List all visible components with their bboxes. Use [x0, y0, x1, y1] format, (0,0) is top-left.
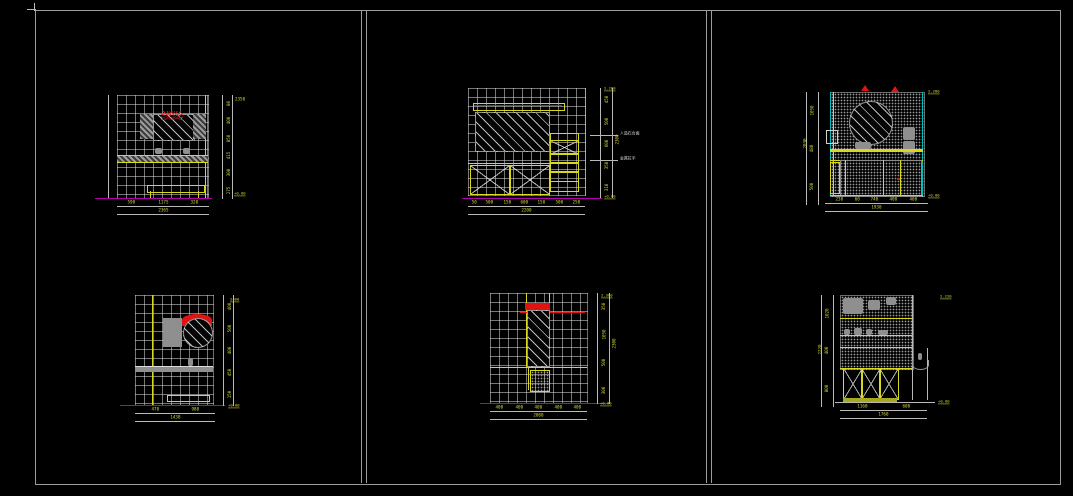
dim-line	[825, 211, 928, 212]
dim-total-row: 1930	[830, 204, 923, 211]
dim-row: 470980	[135, 406, 215, 413]
dim-total-row: 2365	[117, 207, 209, 214]
counter-line	[117, 162, 208, 163]
dim-column: 80400850415300275	[223, 95, 235, 199]
dim-total: 2030	[803, 138, 807, 148]
dim-label: 450	[605, 95, 609, 103]
dim-total: 2365	[158, 209, 168, 213]
base-cabinet-door	[879, 368, 899, 400]
towel	[886, 297, 896, 305]
base-cabinet-door	[861, 368, 881, 400]
dim-line	[468, 214, 585, 215]
round-mirror	[849, 101, 893, 145]
toiletry-item	[866, 329, 872, 335]
elevation-marker: 2400	[230, 298, 239, 302]
dim-label: 500	[486, 201, 494, 205]
dim-line	[609, 293, 610, 404]
light-strip	[474, 105, 562, 106]
dim-label: 480	[810, 145, 814, 153]
shelf-line	[840, 335, 912, 336]
wall-edge-line	[205, 95, 206, 198]
bench-leg	[198, 191, 199, 198]
dim-label: 230	[836, 198, 844, 202]
panel-divider	[706, 10, 712, 483]
spotlight-symbol	[861, 85, 869, 91]
bench-leg	[150, 191, 151, 198]
dim-total-row: 1438	[135, 414, 215, 421]
tile-wall	[135, 295, 214, 406]
round-mirror	[183, 318, 213, 348]
elevation-marker: +0.00	[604, 195, 616, 199]
base-cabinet-door	[470, 165, 510, 195]
dim-label: 320	[191, 201, 199, 205]
elevation-marker: +0.00	[228, 404, 240, 408]
trim-line	[152, 295, 153, 405]
dim-line	[117, 214, 209, 215]
dim-total: 1438	[170, 416, 180, 420]
dim-label: 1160	[858, 405, 868, 409]
dim-row: 400400400400400	[490, 404, 587, 411]
dim-label: 500	[810, 182, 814, 190]
dim-label: 50	[472, 201, 477, 205]
dim-label: 350	[602, 303, 606, 311]
dim-label: 1050	[602, 330, 606, 340]
dim-label: 400	[228, 347, 232, 355]
dim-label: 415	[227, 152, 231, 160]
side-panel	[830, 162, 840, 194]
toiletry-item	[854, 328, 862, 335]
towel	[903, 127, 915, 140]
dim-label: 600	[521, 201, 529, 205]
tall-mirror	[527, 310, 550, 367]
dim-line	[233, 295, 234, 406]
dim-label: 400	[227, 117, 231, 125]
basin-leg-line	[927, 348, 928, 400]
dim-label: 450	[228, 369, 232, 377]
dim-label: 150	[503, 201, 511, 205]
faucet-symbol	[183, 148, 190, 154]
dim-label: 400	[825, 347, 829, 355]
dim-line	[135, 421, 215, 422]
counter-line	[490, 367, 587, 368]
dim-label: 400	[228, 302, 232, 310]
dim-line	[840, 418, 927, 419]
dim-column: 1020400800	[821, 295, 833, 407]
dim-row: 50500150600150500250	[468, 199, 585, 206]
dim-label: 400	[535, 406, 543, 410]
elevation-marker: +0.00	[234, 192, 246, 196]
dim-label: 60	[855, 198, 860, 202]
dim-row: 23060740400400	[830, 196, 923, 203]
elevation-drawing-6: 1020400800 2220 1160600 1760 2.220 +0.00	[810, 288, 965, 428]
plant-symbol	[161, 111, 183, 120]
mirror-side-panel	[193, 114, 206, 139]
mirror	[475, 112, 550, 152]
towel	[843, 298, 863, 314]
dim-total-row: 2200	[468, 207, 585, 214]
dim-line	[833, 295, 834, 407]
dim-label: 310	[605, 183, 609, 191]
corner-mark	[34, 3, 35, 11]
dim-label: 1175	[158, 201, 168, 205]
bench	[147, 185, 205, 193]
elevation-drawing-3: 1050480500 2030 23060740400400 1930 2.28…	[795, 82, 970, 217]
dim-label: 800	[825, 385, 829, 393]
dim-total: 1760	[878, 413, 888, 417]
handle-mark	[897, 178, 900, 180]
elevation-marker: 2.280	[928, 90, 940, 94]
shelf-line	[840, 347, 912, 348]
dim-label: 1020	[825, 309, 829, 319]
cabinet-divider	[900, 160, 901, 195]
dim-total: 2300	[612, 338, 616, 348]
dim-line	[612, 88, 613, 198]
dim-column: 400500400450150	[224, 295, 236, 406]
dim-label: 850	[227, 135, 231, 143]
cabinet-divider	[883, 160, 884, 195]
basin-pedestal	[530, 370, 550, 392]
dim-label: 740	[871, 198, 879, 202]
wall-edge-line	[912, 295, 913, 400]
base-cabinet-door	[510, 165, 550, 195]
dim-line	[818, 92, 819, 205]
dim-label: 275	[227, 187, 231, 195]
leader-line	[590, 160, 618, 161]
faucet-symbol	[878, 330, 888, 335]
material-annotation: 人造石台面	[620, 132, 640, 136]
extension-line	[108, 95, 109, 199]
elevation-drawing-4: 400500400450150 2400 +0.00 470980 1438	[120, 290, 265, 430]
towel	[868, 300, 880, 310]
wall-panel	[163, 318, 182, 347]
switch-panel	[826, 130, 838, 144]
dim-label: 300	[227, 169, 231, 177]
dim-label: 250	[573, 201, 581, 205]
basin-faucet	[855, 142, 871, 149]
dim-label: 400	[890, 198, 898, 202]
shelf-line	[840, 318, 912, 319]
dim-label: 80	[227, 101, 231, 106]
mirror-lamp	[525, 303, 550, 310]
dim-label: 150	[538, 201, 546, 205]
mirror-side-panel	[140, 114, 153, 139]
towel	[903, 141, 915, 154]
cad-drawing-canvas[interactable]: 5901175320 2365 80400850415300275 2350 +…	[0, 0, 1073, 496]
dim-total: 2220	[818, 344, 822, 354]
dim-label: 980	[191, 408, 199, 412]
elevation-drawing-5: 400400400400400 2000 3501050500300 2300 …	[478, 288, 618, 428]
elevation-marker: +0.00	[928, 194, 940, 198]
toiletry-item	[844, 329, 850, 335]
dim-label: 400	[496, 406, 504, 410]
dim-label: 470	[151, 408, 159, 412]
leader-line	[590, 135, 618, 136]
counter-line	[468, 163, 550, 164]
dim-label: 500	[555, 201, 563, 205]
counter-band	[135, 367, 213, 372]
base-cabinet-door	[843, 368, 863, 400]
faucet-symbol	[188, 358, 193, 366]
dim-total-row: 1760	[840, 411, 927, 418]
dim-label: 1050	[810, 106, 814, 116]
cabinet-edge	[528, 367, 529, 390]
dim-label: 400	[909, 198, 917, 202]
dim-label: 500	[605, 117, 609, 125]
dim-label: 400	[573, 406, 581, 410]
dim-label: 400	[554, 406, 562, 410]
dim-label: 300	[602, 386, 606, 394]
dim-line	[490, 419, 587, 420]
base-cabinet	[840, 160, 922, 197]
dim-row: 5901175320	[117, 199, 209, 206]
dim-total: 2200	[521, 209, 531, 213]
dim-label: 500	[228, 324, 232, 332]
counter-band	[830, 149, 923, 152]
elevation-drawing-2: 50500150600150500250 2200 45050060035031…	[460, 78, 645, 223]
dim-line	[232, 95, 233, 199]
material-annotation: 金属拉手	[620, 157, 636, 161]
dim-row: 1160600	[840, 403, 927, 410]
elevation-marker: 2.280	[604, 87, 616, 91]
dim-label: 350	[605, 161, 609, 169]
dim-label: 400	[515, 406, 523, 410]
faucet-symbol	[155, 148, 162, 154]
dim-column: 1050480500	[806, 92, 818, 205]
basin-faucet	[918, 353, 922, 360]
panel-divider	[361, 10, 367, 483]
elevation-drawing-1: 5901175320 2365 80400850415300275 2350 +…	[95, 85, 255, 230]
dim-total: 2350	[235, 97, 245, 101]
dim-total: 2000	[533, 414, 543, 418]
wall-edge-line	[922, 92, 923, 195]
elevation-marker: 2.220	[940, 295, 952, 299]
dim-label: 590	[128, 201, 136, 205]
spotlight-symbol	[891, 86, 899, 92]
dim-label: 500	[602, 359, 606, 367]
dim-total-row: 2000	[490, 412, 587, 419]
dim-label: 150	[228, 391, 232, 399]
cabinet-divider	[845, 160, 846, 195]
elevation-marker: 2.300	[601, 294, 613, 298]
elevation-marker: +0.00	[600, 402, 612, 406]
elevation-marker: +0.00	[938, 400, 950, 404]
dim-label: 600	[902, 405, 910, 409]
dim-total: 1930	[871, 206, 881, 210]
dim-label: 600	[605, 139, 609, 147]
base-plinth	[167, 395, 210, 402]
drawer	[550, 171, 579, 182]
